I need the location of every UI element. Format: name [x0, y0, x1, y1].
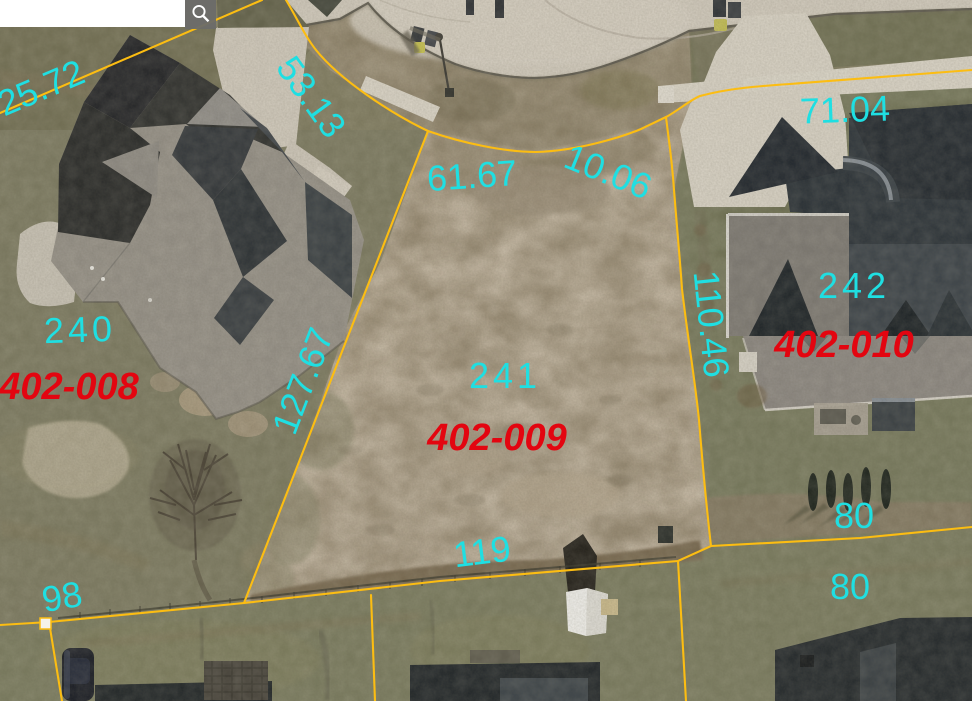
- svg-text:402-009: 402-009: [426, 417, 566, 459]
- svg-text:61.67: 61.67: [426, 152, 519, 199]
- svg-text:98: 98: [39, 573, 86, 620]
- svg-text:71.04: 71.04: [799, 87, 890, 131]
- svg-text:80: 80: [830, 566, 870, 607]
- svg-text:119: 119: [451, 528, 513, 576]
- svg-text:402-010: 402-010: [773, 324, 913, 366]
- svg-text:242: 242: [818, 265, 890, 306]
- svg-text:240: 240: [43, 308, 116, 351]
- svg-text:80: 80: [834, 495, 874, 536]
- svg-text:402-008: 402-008: [0, 366, 140, 408]
- svg-text:241: 241: [469, 355, 541, 396]
